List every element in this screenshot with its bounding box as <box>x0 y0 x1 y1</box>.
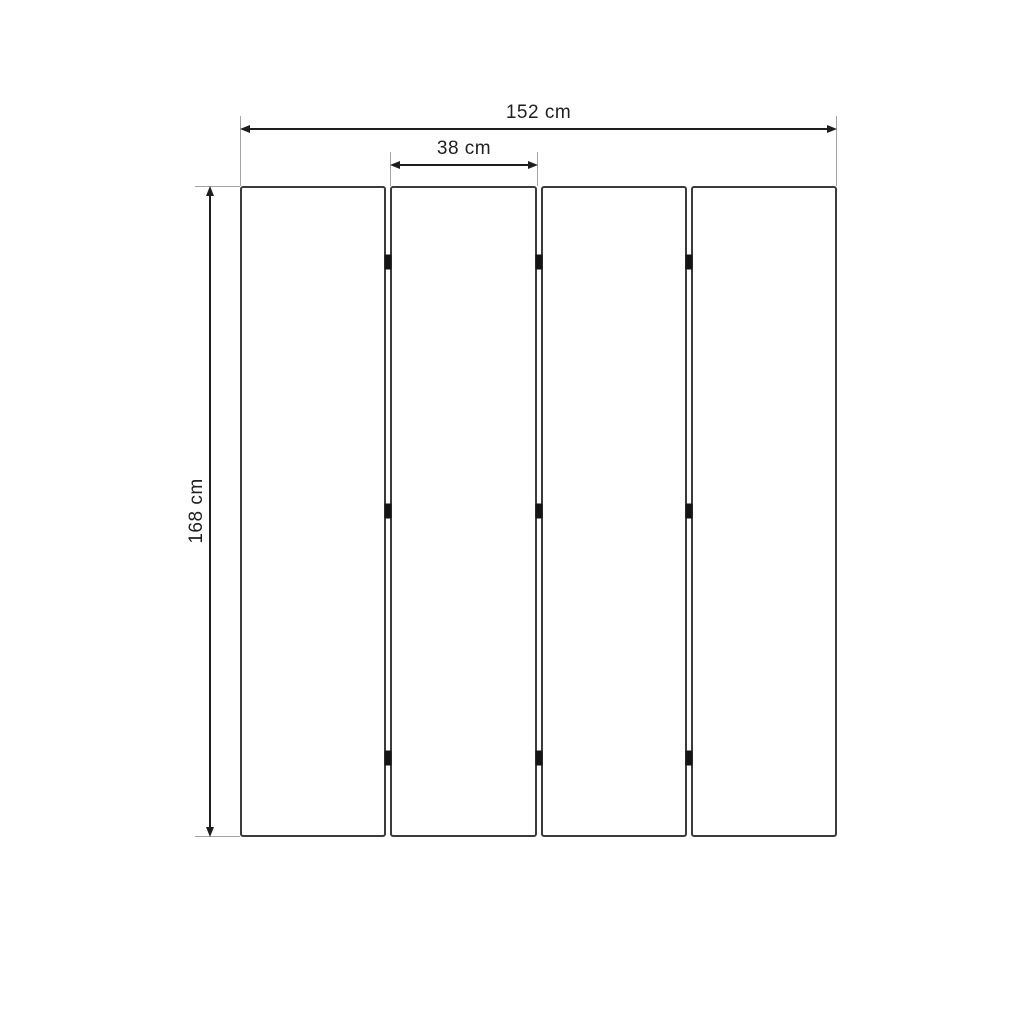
panel-4 <box>691 186 837 837</box>
hinge-icon <box>535 255 542 270</box>
dimension-diagram: 152 cm 38 cm 168 cm <box>0 0 1024 1024</box>
panel-width-dimension-label: 38 cm <box>414 138 514 160</box>
hinge-icon <box>385 751 392 766</box>
hinge-icon <box>685 255 692 270</box>
arrowhead-left-icon <box>390 161 400 169</box>
extension-line <box>195 186 240 187</box>
extension-line <box>390 152 391 186</box>
hinge-icon <box>685 751 692 766</box>
extension-line <box>195 836 240 837</box>
arrowhead-left-icon <box>240 125 250 133</box>
height-dimension-line <box>209 190 211 833</box>
panel-group <box>240 186 837 837</box>
hinge-icon <box>535 751 542 766</box>
arrowhead-up-icon <box>206 186 214 196</box>
panel-1 <box>240 186 386 837</box>
panel-width-dimension-line <box>393 164 535 166</box>
arrowhead-right-icon <box>528 161 538 169</box>
hinge-icon <box>385 504 392 519</box>
panel-2 <box>390 186 536 837</box>
extension-line <box>537 152 538 186</box>
height-dimension-label: 168 cm <box>187 461 207 561</box>
total-width-dimension-label: 152 cm <box>478 102 599 124</box>
hinge-icon <box>685 504 692 519</box>
hinge-icon <box>385 255 392 270</box>
total-width-dimension-line <box>243 128 834 130</box>
hinge-icon <box>535 504 542 519</box>
panel-3 <box>541 186 687 837</box>
arrowhead-right-icon <box>827 125 837 133</box>
arrowhead-down-icon <box>206 827 214 837</box>
